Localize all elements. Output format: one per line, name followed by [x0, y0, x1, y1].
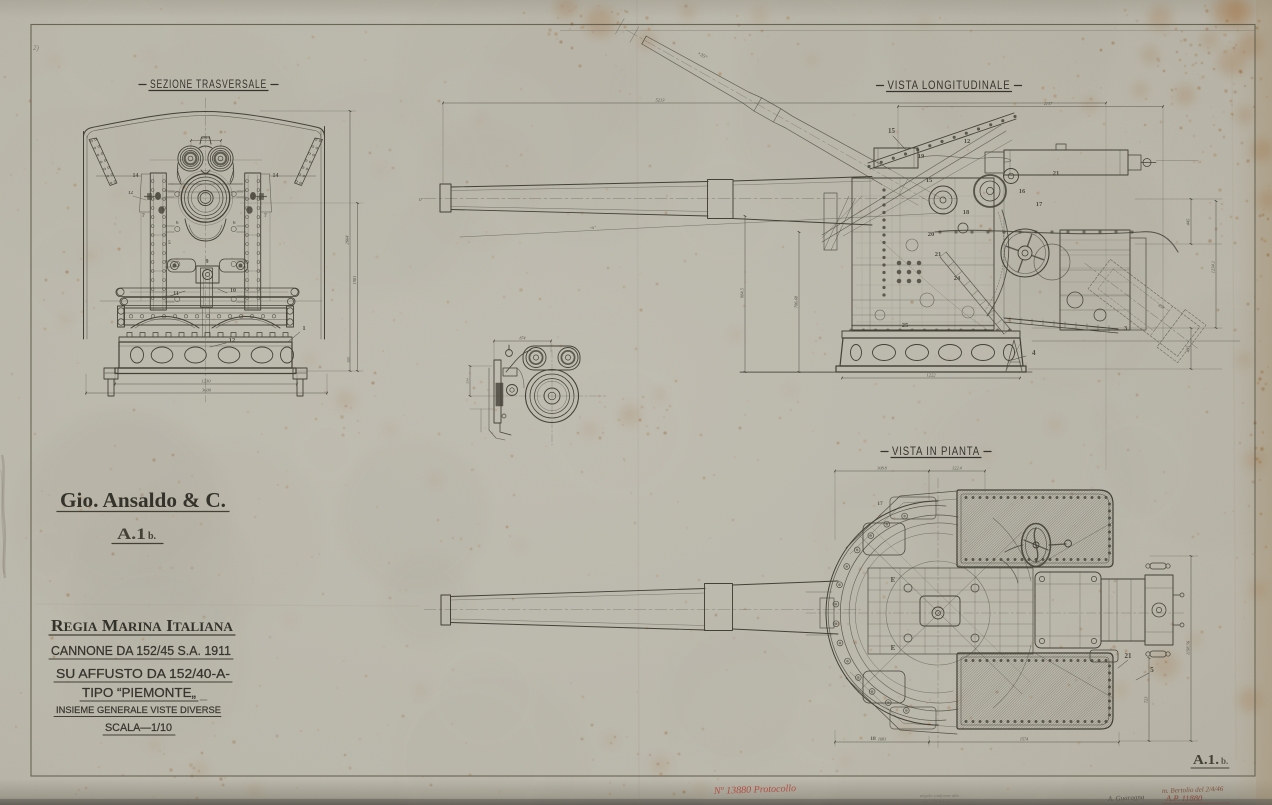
svg-text:-5°: -5°	[590, 226, 596, 231]
svg-text:b.: b.	[148, 531, 157, 542]
svg-text:7: 7	[142, 213, 145, 219]
svg-text:TIPO “PIEMONTE„: TIPO “PIEMONTE„	[82, 686, 196, 700]
svg-text:A.1: A.1	[117, 526, 146, 543]
svg-text:10: 10	[230, 288, 236, 294]
svg-text:CANNONE DA 152/45 S.A. 1911: CANNONE DA 152/45 S.A. 1911	[51, 644, 231, 658]
svg-text:15: 15	[926, 177, 933, 184]
svg-text:17: 17	[1036, 201, 1043, 208]
svg-text:21: 21	[1125, 652, 1133, 660]
svg-text:1234.1: 1234.1	[1211, 261, 1216, 273]
svg-text:706.68: 706.68	[794, 295, 799, 308]
svg-text:4: 4	[1032, 349, 1036, 357]
svg-text:2664: 2664	[345, 235, 350, 245]
svg-text:SEZIONE TRASVERSALE: SEZIONE TRASVERSALE	[150, 79, 267, 91]
svg-text:A.1.: A.1.	[1193, 753, 1219, 768]
svg-text:445: 445	[1186, 218, 1191, 226]
svg-text:0°: 0°	[419, 198, 424, 203]
svg-text:1683: 1683	[878, 737, 886, 742]
svg-text:12: 12	[128, 191, 134, 196]
svg-text:3600: 3600	[202, 388, 212, 393]
svg-text:b.: b.	[1221, 756, 1228, 766]
svg-text:E: E	[891, 576, 896, 584]
svg-text:5: 5	[1150, 666, 1154, 674]
svg-text:2): 2)	[33, 44, 40, 52]
svg-text:7: 7	[264, 213, 267, 219]
svg-text:5213: 5213	[656, 98, 666, 103]
svg-text:18: 18	[870, 736, 876, 742]
svg-text:12: 12	[964, 138, 971, 145]
svg-text:308.8: 308.8	[877, 466, 887, 471]
svg-text:Gio. Ansaldo & C.: Gio. Ansaldo & C.	[60, 488, 226, 512]
svg-text:5: 5	[168, 240, 171, 246]
svg-text:9: 9	[206, 259, 209, 265]
svg-text:16: 16	[1019, 188, 1026, 195]
svg-text:SCALA—1/10: SCALA—1/10	[105, 722, 172, 734]
svg-text:984.5: 984.5	[740, 287, 745, 298]
svg-text:2137: 2137	[1044, 101, 1053, 106]
svg-text:VISTA IN PIANTA: VISTA IN PIANTA	[892, 446, 980, 458]
svg-text:E: E	[891, 644, 896, 652]
svg-text:20: 20	[928, 231, 935, 238]
svg-text:VISTA LONGITUDINALE: VISTA LONGITUDINALE	[888, 80, 1011, 92]
svg-text:angolo conforme alla: angolo conforme alla	[920, 793, 959, 798]
svg-text:1: 1	[302, 325, 305, 332]
svg-text:1574: 1574	[1020, 737, 1028, 742]
svg-text:17: 17	[877, 501, 883, 507]
svg-text:18: 18	[963, 209, 970, 216]
svg-text:1981: 1981	[352, 276, 357, 285]
svg-text:322.4: 322.4	[952, 466, 961, 471]
svg-text:435: 435	[1186, 345, 1191, 353]
svg-text:300: 300	[347, 357, 351, 363]
svg-text:874: 874	[520, 336, 526, 341]
svg-text:723: 723	[1144, 696, 1149, 704]
svg-text:21: 21	[1053, 170, 1060, 177]
svg-text:25: 25	[902, 322, 909, 329]
svg-text:14: 14	[133, 173, 139, 179]
svg-text:294.3: 294.3	[202, 136, 210, 140]
svg-text:554: 554	[466, 378, 470, 384]
svg-text:15: 15	[888, 127, 896, 135]
svg-text:1198.56: 1198.56	[1186, 640, 1191, 655]
svg-text:12: 12	[229, 337, 236, 344]
svg-text:INSIEME GENERALE VISTE DIVERSE: INSIEME GENERALE VISTE DIVERSE	[56, 705, 221, 715]
svg-text:1222: 1222	[927, 373, 937, 378]
svg-text:SU AFFUSTO DA 152/40-A-: SU AFFUSTO DA 152/40-A-	[56, 667, 230, 681]
svg-text:14: 14	[273, 173, 279, 179]
svg-text:1230: 1230	[202, 379, 212, 384]
